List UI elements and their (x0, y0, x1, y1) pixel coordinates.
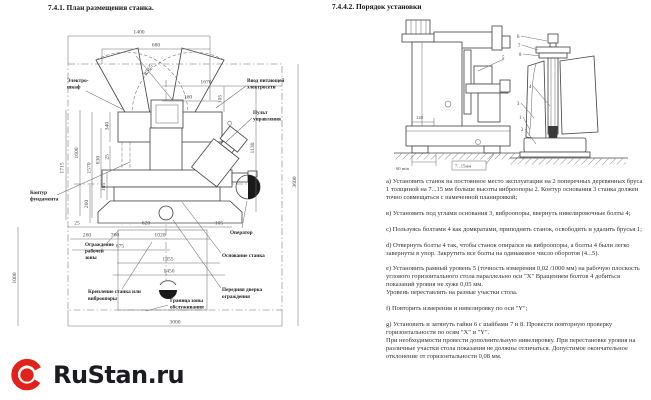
svg-text:Граница зоны: Граница зоны (170, 298, 203, 304)
svg-text:фундамента: фундамента (30, 196, 59, 203)
svg-text:7: 7 (518, 44, 521, 49)
svg-text:3600: 3600 (292, 176, 298, 187)
rustan-logo-icon (8, 356, 46, 394)
svg-text:7...15мм: 7...15мм (455, 164, 471, 169)
svg-text:1670: 1670 (200, 80, 211, 86)
section-title-installation-order: 7.4.4.2. Порядок установки (332, 2, 422, 11)
svg-text:3: 3 (517, 102, 520, 107)
operator-position-symbol (236, 175, 260, 199)
svg-text:управления: управления (253, 117, 281, 123)
svg-text:830: 830 (96, 156, 102, 165)
svg-text:Крепление станка или: Крепление станка или (88, 289, 141, 295)
svg-text:680: 680 (152, 43, 161, 49)
step-a: а) Установить станок на постоянное место… (386, 178, 644, 202)
svg-text:4: 4 (529, 85, 532, 90)
svg-text:1000: 1000 (12, 272, 18, 283)
svg-text:260: 260 (84, 200, 90, 209)
svg-text:1130: 1130 (250, 142, 256, 153)
svg-text:зоны: зоны (85, 255, 97, 261)
svg-text:105: 105 (218, 95, 224, 104)
svg-text:1715: 1715 (60, 162, 66, 173)
step-f: f) Повторить измерения и нивелировку по … (386, 305, 644, 313)
svg-text:1355: 1355 (162, 257, 173, 263)
svg-text:160: 160 (184, 95, 193, 101)
svg-text:Контур: Контур (30, 190, 47, 196)
svg-text:1400: 1400 (133, 30, 144, 36)
svg-text:шкаф: шкаф (67, 84, 81, 91)
svg-text:105: 105 (215, 221, 224, 227)
svg-text:обслуживания: обслуживания (170, 304, 204, 311)
svg-text:Основание станка: Основание станка (222, 253, 265, 259)
machine-placement-plan-drawing: 1400 680 R565 1670 160 105 1715 1600 157… (10, 20, 325, 350)
step-b: в) Установить под углами основания 3, ви… (386, 210, 644, 218)
svg-text:Передняя дверка: Передняя дверка (222, 287, 263, 293)
svg-text:620: 620 (142, 221, 151, 227)
svg-text:Пульт: Пульт (253, 110, 268, 116)
rustan-logo-text: RuStan.ru (53, 363, 184, 387)
svg-text:Электро-: Электро- (67, 78, 89, 84)
step-c: с) Пользуясь болтами 4 как домкратами, п… (386, 226, 644, 234)
svg-text:260: 260 (83, 233, 92, 239)
svg-text:1020: 1020 (154, 233, 165, 239)
operator-position-symbol-2 (159, 281, 177, 299)
step-e: е) Установить рамный уровень 5 (точность… (386, 265, 644, 297)
installation-steps-text: а) Установить станок на постоянное место… (386, 178, 644, 369)
svg-text:1600: 1600 (74, 147, 80, 158)
svg-text:Ограждение: Ограждение (85, 242, 115, 248)
installation-procedure-drawing: 120 60 min 7...15мм 5 6 7 (378, 14, 648, 179)
svg-text:25: 25 (74, 221, 80, 227)
scanned-manual-page: { "left": { "title": "7.4.1. План размещ… (0, 0, 651, 400)
svg-text:120: 120 (416, 115, 424, 120)
svg-text:6: 6 (517, 35, 520, 40)
svg-text:электросети: электросети (247, 85, 276, 91)
svg-text:Оператор: Оператор (230, 230, 253, 236)
section-title-placement-plan: 7.4.1. План размещения станка. (48, 3, 154, 12)
svg-text:2: 2 (521, 128, 524, 133)
svg-text:3000: 3000 (169, 320, 180, 326)
rustan-logo[interactable]: RuStan.ru (8, 356, 184, 394)
svg-text:25: 25 (105, 154, 111, 160)
machine-side-view (394, 20, 526, 160)
svg-text:виброопоры: виброопоры (88, 295, 117, 302)
svg-text:ограждения: ограждения (222, 294, 250, 300)
svg-text:1: 1 (519, 116, 522, 121)
step-d: d) Отвернуть болты 4 так, чтобы станок о… (386, 242, 644, 258)
svg-text:R565: R565 (143, 64, 155, 78)
svg-text:675: 675 (116, 244, 125, 250)
step-g: g) Установить и затянуть гайки 6 с шайба… (386, 321, 644, 361)
svg-text:1450: 1450 (163, 269, 174, 275)
svg-text:340: 340 (105, 122, 111, 131)
svg-text:60 min: 60 min (396, 166, 410, 171)
svg-text:8: 8 (519, 53, 522, 58)
svg-text:5: 5 (502, 56, 505, 61)
leveling-bolt-detail (510, 34, 628, 165)
svg-text:рабочей: рабочей (85, 248, 104, 255)
svg-text:105: 105 (101, 183, 107, 192)
svg-text:1570: 1570 (87, 162, 93, 173)
svg-text:Ввод питающей: Ввод питающей (247, 77, 284, 84)
